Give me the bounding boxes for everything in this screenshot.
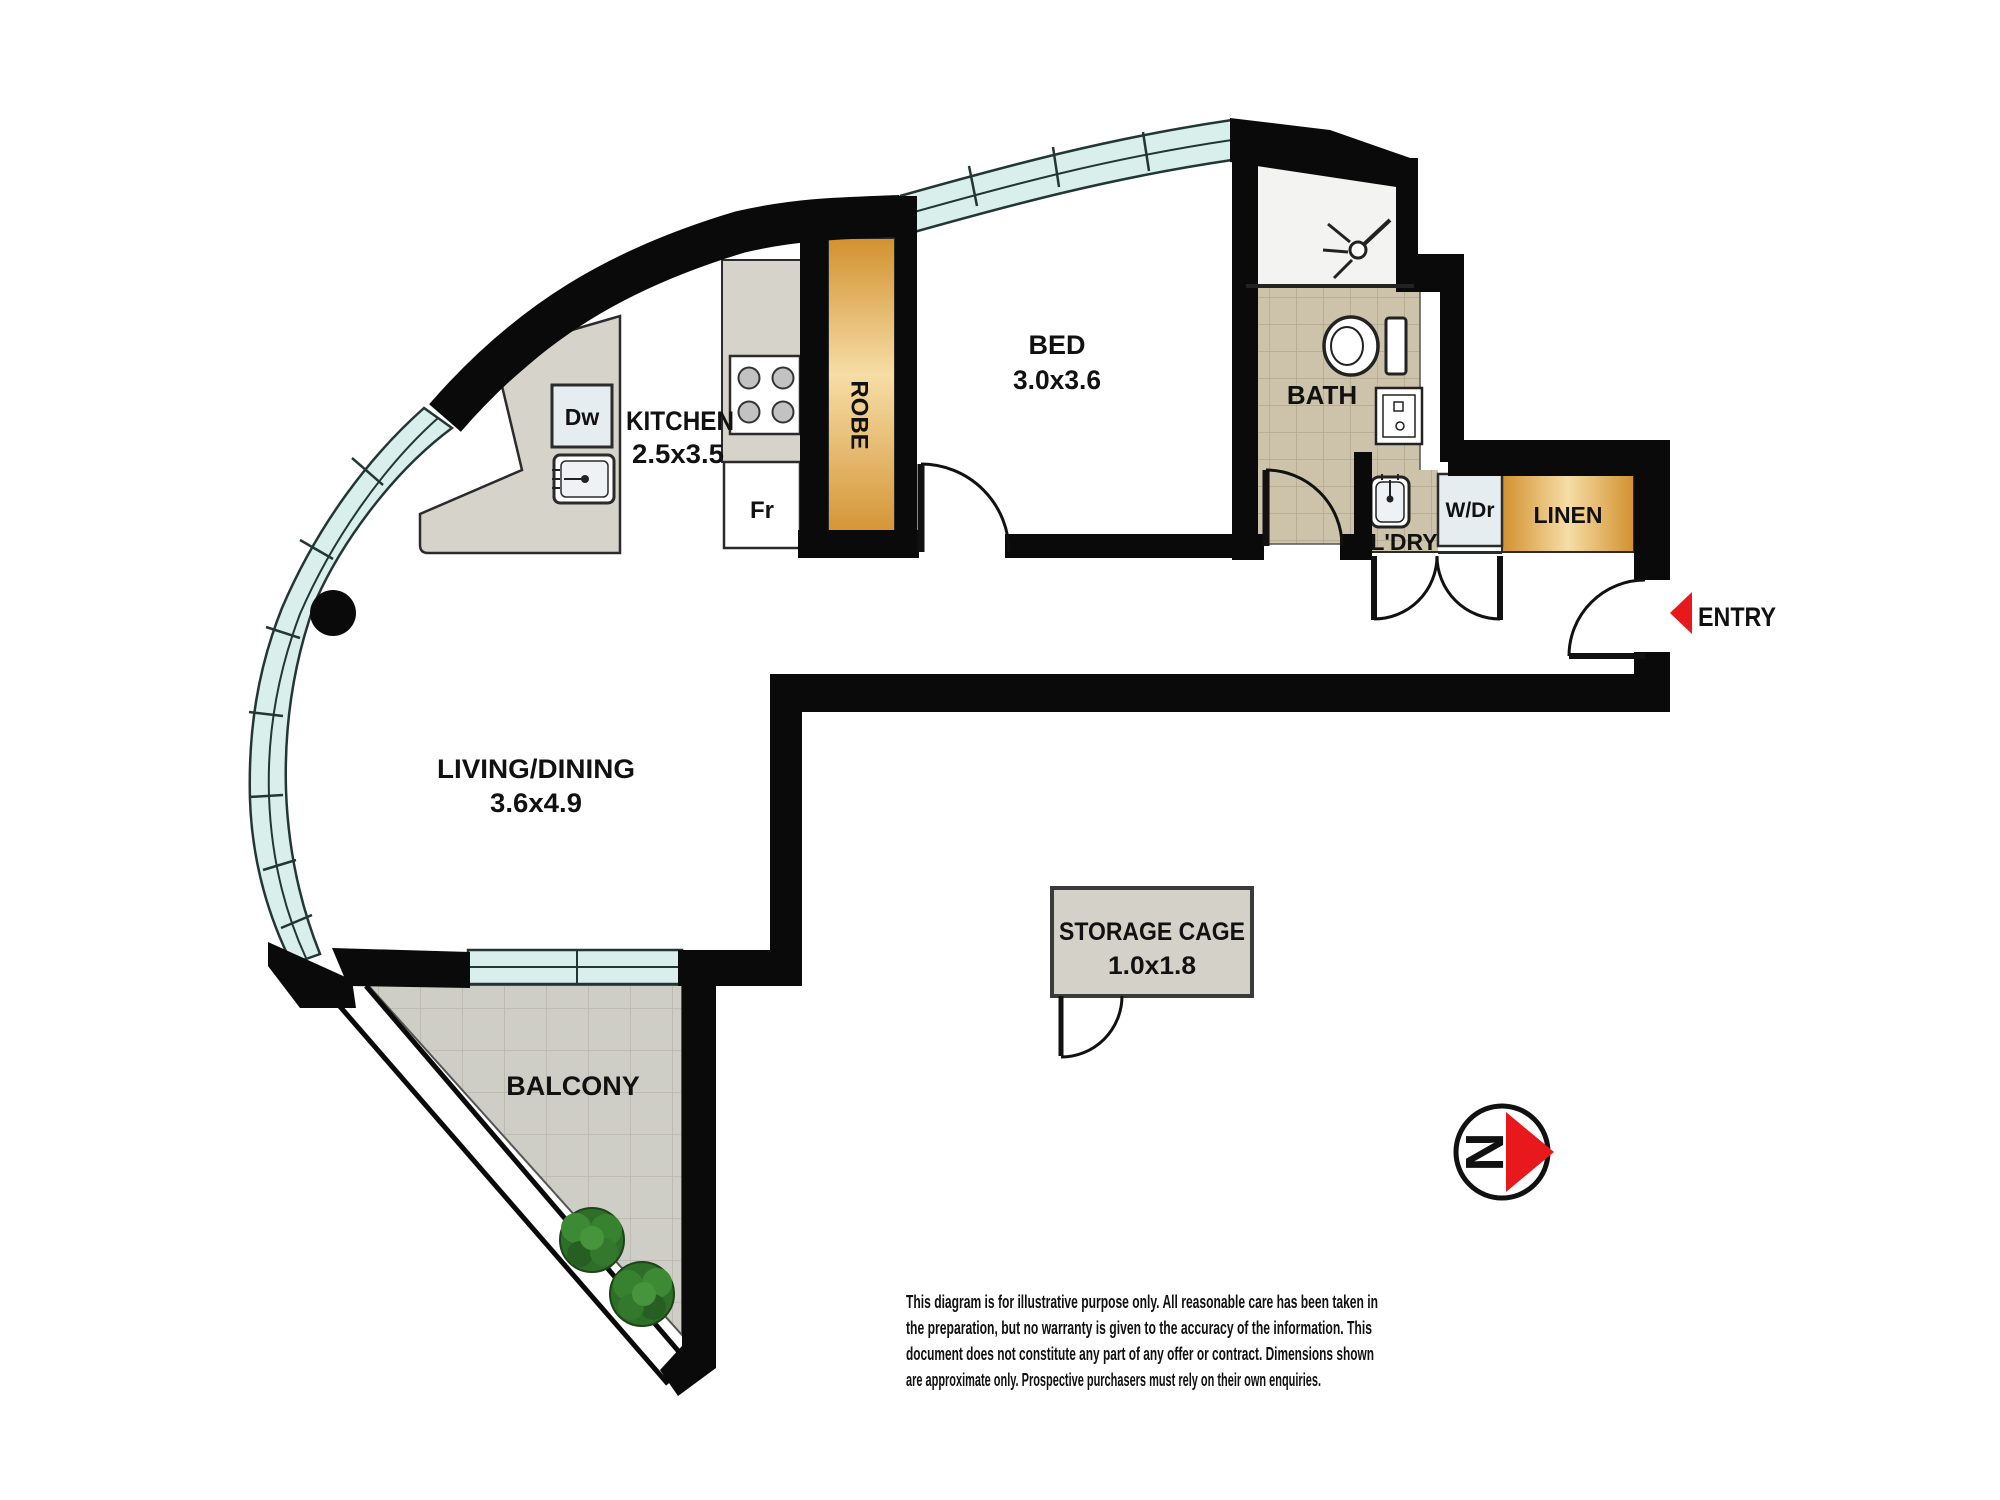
stove-icon [730, 356, 800, 434]
laundry-label: L'DRY [1370, 529, 1437, 555]
toilet-icon [1324, 317, 1406, 375]
disclaimer-line: document does not constitute any part of… [906, 1344, 1374, 1364]
living-label: LIVING/DINING [437, 754, 635, 784]
kitchen-label: KITCHEN [626, 406, 734, 436]
entry-door [1569, 580, 1645, 656]
kitchen-sink-icon [552, 455, 614, 503]
storage-label: STORAGE CAGE [1059, 918, 1245, 946]
tree-icon [560, 1208, 624, 1272]
compass-north-label: N [1454, 1133, 1514, 1172]
disclaimer-line: This diagram is for illustrative purpose… [906, 1292, 1378, 1312]
entry-label: ENTRY [1698, 602, 1776, 632]
bed-door [921, 464, 1009, 552]
disclaimer: This diagram is for illustrative purpose… [906, 1292, 1378, 1390]
disclaimer-line: the preparation, but no warranty is give… [906, 1318, 1372, 1338]
bed-label: BED [1028, 330, 1085, 360]
curved-glass-wall [249, 408, 452, 964]
storage-door-swing [1061, 996, 1122, 1057]
living-window [468, 950, 682, 984]
bed-window [900, 120, 1232, 236]
laundry-tub-icon [1371, 474, 1409, 527]
bed-dims: 3.0x3.6 [1013, 365, 1101, 395]
tree-icon [610, 1262, 674, 1326]
entry-marker: ENTRY [1670, 592, 1776, 634]
kitchen-dims: 2.5x3.5 [632, 439, 724, 469]
disclaimer-line: are approximate only. Prospective purcha… [906, 1370, 1321, 1390]
floor-plan: ENTRY N KITCHEN 2.5x3.5 BED 3.0x3.6 BATH… [0, 0, 2000, 1500]
dishwasher-label: Dw [565, 404, 600, 430]
washer-dryer-label: W/Dr [1446, 499, 1495, 522]
entry-arrow-icon [1670, 592, 1692, 634]
fridge-label: Fr [750, 497, 774, 524]
vanity-icon [1376, 388, 1422, 444]
cabinets [828, 238, 1634, 553]
balcony-label: BALCONY [506, 1071, 640, 1101]
north-compass: N [1454, 1106, 1554, 1198]
bath-label: BATH [1287, 380, 1357, 410]
linen-label: LINEN [1534, 502, 1603, 528]
floor-plan-svg: ENTRY N KITCHEN 2.5x3.5 BED 3.0x3.6 BATH… [0, 0, 2000, 1500]
storage-dims: 1.0x1.8 [1108, 952, 1196, 980]
column [310, 590, 356, 636]
living-dims: 3.6x4.9 [490, 788, 582, 818]
robe-label: ROBE [846, 380, 873, 449]
laundry-doors [1374, 556, 1500, 620]
